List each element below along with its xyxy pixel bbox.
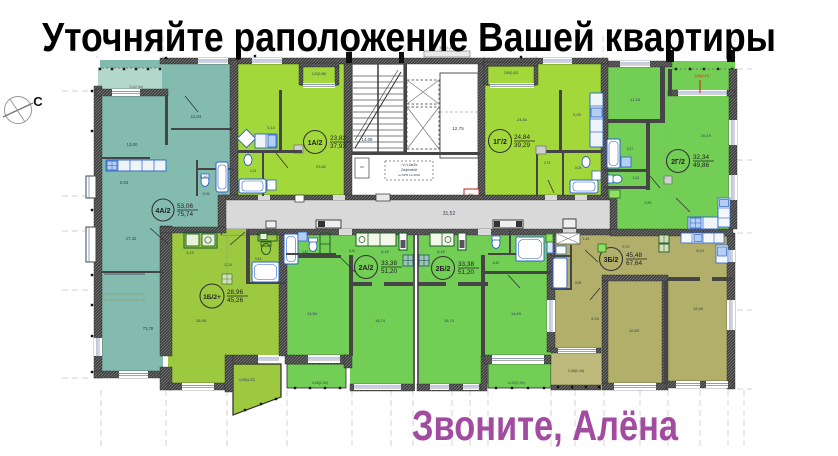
svg-text:14,09: 14,09 <box>362 137 374 142</box>
svg-text:5,90: 5,90 <box>645 201 652 205</box>
svg-text:17,32: 17,32 <box>126 236 137 241</box>
svg-text:75,74: 75,74 <box>177 211 193 218</box>
svg-text:2Г/2: 2Г/2 <box>671 159 685 166</box>
svg-text:1,42: 1,42 <box>583 237 590 241</box>
svg-text:5,93: 5,93 <box>120 180 129 185</box>
svg-text:кл: кл <box>360 165 363 169</box>
svg-text:С: С <box>33 94 43 109</box>
svg-text:67,64: 67,64 <box>626 260 642 267</box>
svg-text:18,74: 18,74 <box>375 318 386 323</box>
svg-text:12,75: 12,75 <box>452 126 464 131</box>
svg-text:10,83: 10,83 <box>629 328 640 333</box>
svg-text:8,20: 8,20 <box>349 249 356 253</box>
svg-text:4А/2: 4А/2 <box>155 206 170 215</box>
svg-text:23,82: 23,82 <box>316 164 327 169</box>
svg-text:32,34: 32,34 <box>693 154 709 161</box>
svg-text:3,44(2,47): 3,44(2,47) <box>695 74 710 78</box>
svg-text:3,09: 3,09 <box>575 281 582 285</box>
svg-text:11,18: 11,18 <box>630 97 640 102</box>
svg-text:23,82: 23,82 <box>330 135 346 142</box>
svg-text:1Г/2: 1Г/2 <box>493 139 507 146</box>
svg-text:31,52: 31,52 <box>443 211 456 217</box>
svg-text:3,43: 3,43 <box>255 257 262 261</box>
svg-text:6,40: 6,40 <box>493 261 500 265</box>
svg-text:20,19: 20,19 <box>701 133 712 138</box>
svg-text:4,28(2,30): 4,28(2,30) <box>312 381 328 385</box>
svg-text:53,06: 53,06 <box>177 203 193 210</box>
svg-text:11,04: 11,04 <box>191 114 202 119</box>
svg-text:4,33: 4,33 <box>250 169 257 173</box>
svg-text:5,09: 5,09 <box>573 113 580 117</box>
svg-text:45,48: 45,48 <box>626 252 642 259</box>
svg-text:4,05(4,22): 4,05(4,22) <box>239 378 255 382</box>
svg-text:39,29: 39,29 <box>514 142 530 149</box>
svg-text:33,38: 33,38 <box>458 261 474 268</box>
svg-text:9,06: 9,06 <box>203 192 210 196</box>
svg-text:3,24: 3,24 <box>224 263 231 267</box>
svg-text:33,38: 33,38 <box>381 260 397 267</box>
svg-text:14,84: 14,84 <box>307 311 318 316</box>
svg-text:3,73: 3,73 <box>544 161 551 165</box>
svg-text:14,69: 14,69 <box>511 311 522 316</box>
svg-text:~V=1,6м3/с: ~V=1,6м3/с <box>401 163 418 167</box>
svg-text:49,86: 49,86 <box>693 162 709 169</box>
svg-text:9,24: 9,24 <box>696 248 705 253</box>
svg-text:24,84: 24,84 <box>514 134 530 141</box>
svg-text:Уточняйте раположение Вашей кв: Уточняйте раположение Вашей квартиры <box>42 14 776 60</box>
svg-text:3,19: 3,19 <box>186 251 193 255</box>
svg-text:51,20: 51,20 <box>381 268 397 275</box>
svg-text:-4,20(2,94): -4,20(2,94) <box>507 381 525 385</box>
svg-text:1Б/2+: 1Б/2+ <box>203 294 221 301</box>
svg-text:28,96: 28,96 <box>227 289 243 296</box>
svg-text:3Б/2: 3Б/2 <box>604 257 619 264</box>
svg-text:2,20(1,56): 2,20(1,56) <box>312 72 327 76</box>
svg-text:9,26: 9,26 <box>591 316 600 321</box>
svg-text:8,15: 8,15 <box>381 250 388 254</box>
svg-text:3,17: 3,17 <box>627 147 634 151</box>
svg-text:45,26: 45,26 <box>227 297 243 304</box>
svg-text:5,14: 5,14 <box>267 126 274 130</box>
svg-text:Лифтовой: Лифтовой <box>401 168 417 172</box>
svg-text:2,69(1,62): 2,69(1,62) <box>504 71 519 75</box>
svg-text:Звоните, Алёна: Звоните, Алёна <box>412 402 679 450</box>
svg-text:2А/2: 2А/2 <box>359 265 374 272</box>
svg-text:73,78: 73,78 <box>143 326 154 331</box>
svg-text:1,46: 1,46 <box>201 175 208 179</box>
svg-text:8,15: 8,15 <box>437 250 444 254</box>
svg-text:13,00: 13,00 <box>127 142 139 147</box>
svg-text:3,05: 3,05 <box>575 166 582 170</box>
svg-text:1А/2: 1А/2 <box>308 140 323 147</box>
svg-text:37,93: 37,93 <box>330 143 346 150</box>
svg-text:3,46(2,44): 3,46(2,44) <box>568 369 584 373</box>
svg-text:24,84: 24,84 <box>517 117 528 122</box>
svg-text:28,96: 28,96 <box>196 318 207 323</box>
svg-text:по МГБ 14-3004: по МГБ 14-3004 <box>398 173 420 177</box>
svg-text:2Б/2: 2Б/2 <box>436 266 451 273</box>
svg-text:51,20: 51,20 <box>458 269 474 276</box>
svg-text:19,49: 19,49 <box>693 306 704 311</box>
svg-text:9,97: 9,97 <box>622 245 629 249</box>
svg-text:18,74: 18,74 <box>444 318 455 323</box>
svg-text:3,4(2,3а): 3,4(2,3а) <box>129 85 143 89</box>
svg-text:1,41: 1,41 <box>633 176 640 180</box>
